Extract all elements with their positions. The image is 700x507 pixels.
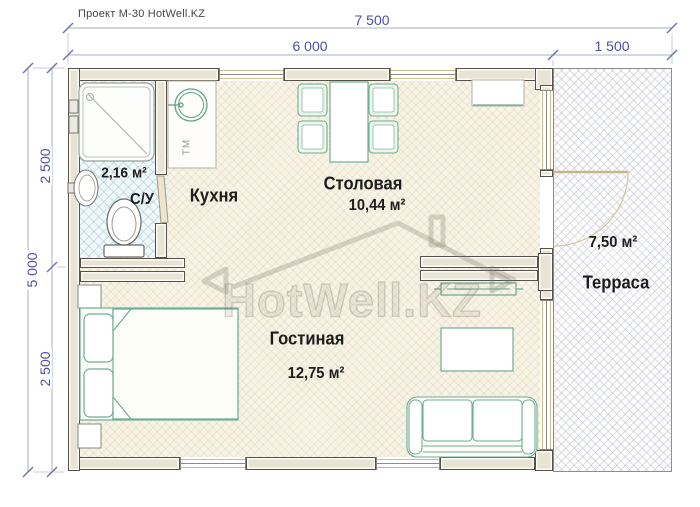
plan-linework [0,0,700,507]
chair [298,84,327,116]
dim-terrace-width: 1 500 [592,39,631,53]
bathroom-name-label: С/У [130,191,154,209]
dim-total-height: 5 000 [25,250,39,289]
chair [298,121,327,153]
bathroom-area-label: 2,16 м² [101,165,146,182]
kitchen-name-label: Кухня [190,186,238,207]
shower-cabin [79,83,154,161]
living-name-label: Гостиная [270,329,345,350]
watermark-text: HotWell.KZ [222,273,482,328]
dim-upper-height: 2 500 [38,146,52,185]
dining-cabinet [472,80,524,106]
dim-inner-width: 6 000 [290,39,329,53]
dining-name-label: Столовая [324,174,403,195]
floor-plan: Проект М-30 HotWell.KZ [0,0,700,507]
living-area-label: 12,75 м² [288,365,345,383]
dim-total-width: 7 500 [352,13,391,27]
chair [369,121,398,153]
sofa [407,397,537,457]
double-bed [80,308,238,420]
terrace-area-label: 7,50 м² [589,234,638,252]
bathroom-door-leaf [157,176,168,223]
dining-area-label: 10,44 м² [349,197,406,215]
dim-lower-height: 2 500 [38,349,52,388]
dining-table [330,82,368,162]
shower-valve [69,100,78,133]
terrace-name-label: Терраса [583,273,650,294]
coffee-table [441,328,513,371]
nightstand-bottom [78,424,101,448]
kitchen-unit-label: ТМ [182,139,193,155]
bathroom-sink [68,170,98,206]
chair [369,84,398,116]
nightstand-top [78,285,101,308]
